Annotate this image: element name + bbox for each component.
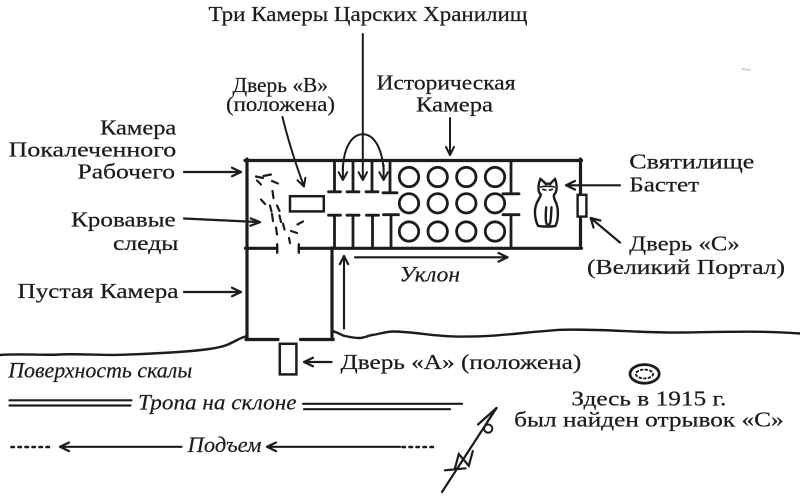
svg-text:Камера: Камера bbox=[100, 116, 177, 140]
svg-text:Святилище: Святилище bbox=[629, 150, 754, 174]
svg-text:Три Камеры Царских Хранилищ: Три Камеры Царских Хранилищ bbox=[209, 2, 528, 26]
svg-text:Подъем: Подъем bbox=[187, 432, 262, 457]
svg-text:Историческая: Историческая bbox=[377, 71, 516, 95]
svg-text:Уклон: Уклон bbox=[400, 261, 461, 286]
svg-text:(Великий Портал): (Великий Портал) bbox=[587, 255, 785, 279]
svg-text:(положена): (положена) bbox=[226, 92, 335, 116]
svg-text:Рабочего: Рабочего bbox=[78, 159, 176, 183]
svg-text:был найден отрывок «С»: был найден отрывок «С» bbox=[514, 407, 783, 431]
svg-text:следы: следы bbox=[113, 231, 179, 255]
svg-text:Дверь «А» (положена): Дверь «А» (положена) bbox=[341, 350, 582, 374]
svg-text:Поверхность скалы: Поверхность скалы bbox=[7, 358, 192, 383]
svg-text:Камера: Камера bbox=[416, 93, 494, 117]
svg-text:Тропа на склоне: Тропа на склоне bbox=[138, 389, 297, 414]
svg-text:Бастет: Бастет bbox=[629, 173, 699, 197]
svg-text:Дверь «С»: Дверь «С» bbox=[629, 231, 739, 255]
svg-text:Кровавые: Кровавые bbox=[71, 207, 176, 231]
svg-text:Пустая Камера: Пустая Камера bbox=[18, 279, 180, 303]
svg-text:Покалеченного: Покалеченного bbox=[9, 138, 177, 162]
